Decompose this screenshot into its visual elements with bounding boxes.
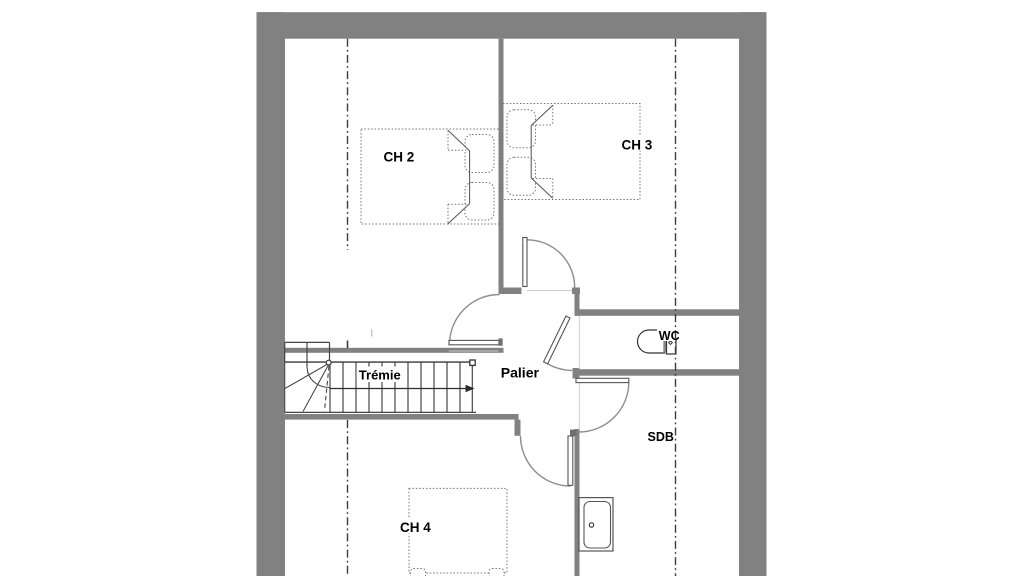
svg-text:WC: WC	[659, 329, 680, 343]
svg-text:SDB: SDB	[648, 430, 674, 444]
svg-text:Trémie: Trémie	[359, 368, 401, 383]
svg-text:Palier: Palier	[501, 365, 540, 381]
svg-text:CH 3: CH 3	[622, 137, 653, 152]
svg-text:CH 2: CH 2	[384, 149, 415, 164]
svg-text:CH 4: CH 4	[400, 520, 431, 535]
